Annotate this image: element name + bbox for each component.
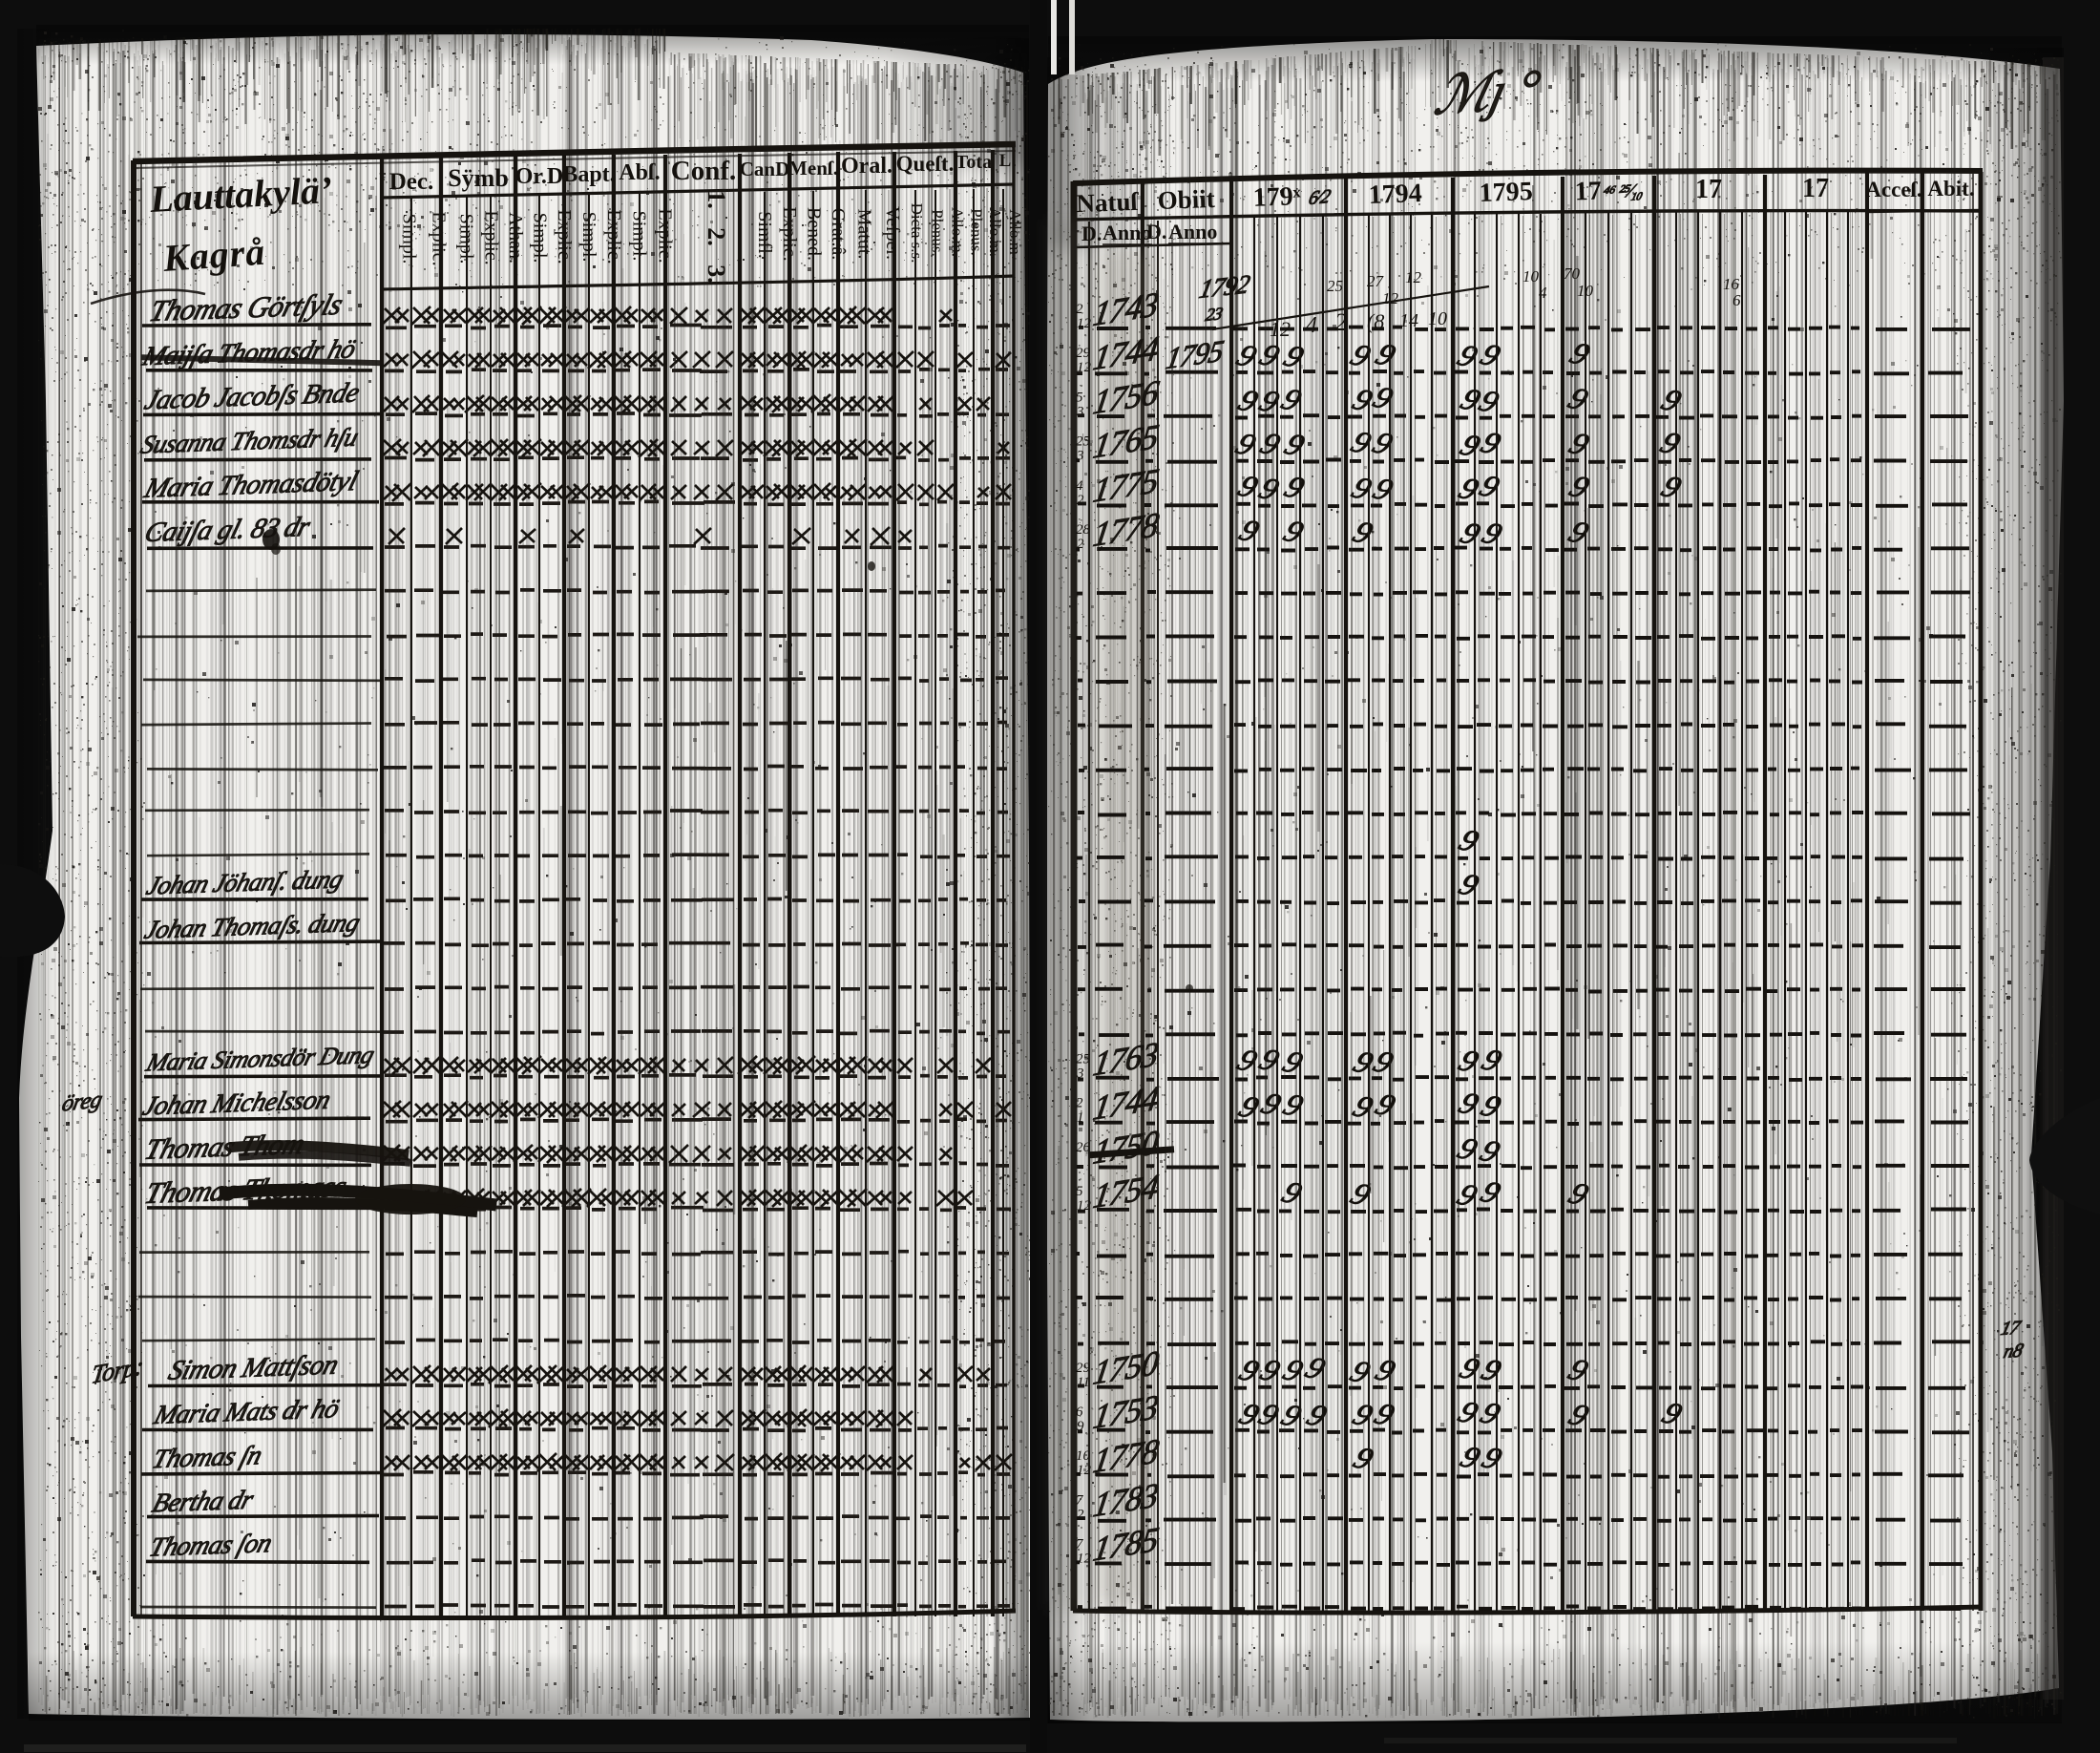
- svg-text:Bapt.: Bapt.: [562, 162, 615, 187]
- svg-text:Athan.: Athan.: [505, 212, 526, 264]
- svg-text:Dec.: Dec.: [389, 169, 434, 195]
- svg-text:Obiit: Obiit: [1157, 184, 1215, 215]
- svg-text:Veſper.: Veſper.: [882, 206, 903, 260]
- svg-text:10: 10: [1577, 282, 1594, 300]
- svg-text:(8: (8: [1367, 309, 1384, 333]
- svg-text:2: 2: [1076, 1096, 1083, 1111]
- svg-text:25: 25: [1327, 277, 1343, 295]
- svg-text:10: 10: [1522, 267, 1540, 285]
- svg-text:29: 29: [1076, 346, 1091, 361]
- svg-text:Plenus.: Plenus.: [929, 209, 947, 257]
- svg-text:4: 4: [1306, 313, 1317, 338]
- svg-text:Abit.: Abit.: [1927, 177, 1974, 201]
- svg-text:1792: 1792: [1197, 268, 1253, 304]
- svg-text:Dicta s.s.: Dicta s.s.: [908, 203, 926, 264]
- svg-text:70: 70: [1564, 264, 1581, 283]
- svg-text:1. 2. 3.: 1. 2. 3.: [703, 190, 730, 284]
- svg-text:12: 12: [1077, 316, 1092, 331]
- svg-text:Sÿmb: Sÿmb: [448, 164, 509, 192]
- svg-text:Conf.: Conf.: [671, 156, 736, 186]
- svg-text:17: 17: [1695, 175, 1722, 204]
- svg-text:Allo.m: Allo.m: [1006, 209, 1024, 255]
- svg-text:12: 12: [1077, 1463, 1092, 1478]
- svg-text:179ˣ: 179ˣ: [1252, 181, 1302, 213]
- svg-text:1: 1: [1077, 1110, 1084, 1126]
- svg-text:Natuſ: Natuſ: [1076, 187, 1140, 218]
- svg-text:2: 2: [1076, 302, 1083, 317]
- svg-text:3: 3: [1076, 404, 1084, 419]
- svg-text:5: 5: [1076, 390, 1083, 405]
- svg-text:4: 4: [1076, 478, 1083, 494]
- svg-text:Bertha dr: Bertha dr: [149, 1485, 258, 1518]
- svg-text:3: 3: [1076, 1066, 1084, 1081]
- svg-text:Bened.: Bened.: [804, 207, 825, 261]
- svg-text:Oral.: Oral.: [841, 154, 892, 179]
- svg-text:D.: D.: [1146, 220, 1166, 243]
- svg-text:12: 12: [1077, 360, 1092, 375]
- svg-text:11: 11: [1077, 1375, 1090, 1390]
- svg-text:Explic.: Explic.: [779, 206, 800, 261]
- svg-text:CanD: CanD: [740, 158, 790, 180]
- svg-text:öreg: öreg: [60, 1087, 105, 1116]
- svg-text:Anno: Anno: [1102, 221, 1151, 244]
- svg-text:1795: 1795: [1479, 177, 1533, 208]
- svg-text:12: 12: [1077, 1552, 1092, 1567]
- svg-text:Simon Mattſson: Simon Mattſson: [165, 1349, 342, 1386]
- svg-text:17: 17: [1574, 177, 1602, 207]
- svg-text:Queſt.: Queſt.: [896, 152, 955, 176]
- svg-text:Or.D: Or.D: [515, 164, 563, 189]
- svg-text:Caijſa gl. 83 dr: Caijſa gl. 83 dr: [141, 511, 314, 548]
- svg-text:Explic.: Explic.: [655, 208, 676, 263]
- svg-text:Allo.m.: Allo.m.: [986, 207, 1004, 257]
- svg-text:27: 27: [1367, 272, 1385, 290]
- svg-text:Simpl.: Simpl.: [578, 212, 599, 263]
- svg-text:14: 14: [1399, 310, 1418, 331]
- svg-text:Explic.: Explic.: [481, 210, 502, 264]
- svg-text:2: 2: [1334, 308, 1347, 336]
- svg-text:5: 5: [1076, 1184, 1083, 1199]
- svg-text:6: 6: [1076, 1405, 1083, 1420]
- svg-text:Grat.â.: Grat.â.: [828, 208, 849, 260]
- svg-text:3: 3: [1076, 449, 1084, 464]
- svg-text:Allo.m.: Allo.m.: [949, 207, 967, 257]
- svg-text:D.: D.: [1081, 222, 1102, 245]
- svg-text:17: 17: [1802, 174, 1829, 203]
- svg-text:12: 12: [1382, 289, 1399, 307]
- svg-text:Simpl.: Simpl.: [530, 213, 551, 264]
- svg-text:12: 12: [1270, 317, 1291, 341]
- svg-text:ℳȷ °: ℳȷ °: [1429, 59, 1545, 127]
- svg-text:Tota: Tota: [955, 152, 992, 173]
- svg-text:Explic.: Explic.: [603, 209, 624, 264]
- svg-text:Explic.: Explic.: [429, 211, 450, 265]
- svg-text:Thomas ſn: Thomas ſn: [149, 1441, 265, 1474]
- svg-text:2: 2: [1077, 537, 1084, 552]
- svg-text:2: 2: [1077, 493, 1084, 508]
- svg-text:25: 25: [1076, 434, 1091, 450]
- svg-text:12: 12: [1405, 268, 1422, 286]
- svg-text:Simpl.: Simpl.: [399, 214, 420, 264]
- svg-text:1794: 1794: [1368, 179, 1422, 210]
- svg-text:Simfl.: Simfl.: [754, 211, 775, 258]
- svg-text:4: 4: [1539, 284, 1547, 302]
- svg-text:6: 6: [1732, 291, 1741, 309]
- svg-text:L: L: [999, 151, 1012, 171]
- svg-text:Plenus.: Plenus.: [968, 208, 986, 256]
- svg-text:Matut.: Matut.: [854, 209, 875, 260]
- svg-text:⁴⁶ ²⁵⁄₁₀: ⁴⁶ ²⁵⁄₁₀: [1601, 180, 1647, 203]
- svg-text:Simpl.: Simpl.: [456, 214, 477, 264]
- svg-text:28: 28: [1076, 522, 1091, 538]
- svg-text:Abſ.: Abſ.: [619, 160, 660, 185]
- svg-text:10: 10: [1076, 1448, 1091, 1464]
- svg-text:Anno: Anno: [1168, 220, 1217, 243]
- svg-text:Simpl.: Simpl.: [629, 211, 650, 262]
- svg-text:9: 9: [1077, 1419, 1084, 1434]
- svg-text:Acceſ.: Acceſ.: [1865, 178, 1921, 201]
- svg-text:Menſ.: Menſ.: [788, 157, 838, 180]
- svg-text:Explic.: Explic.: [554, 209, 575, 264]
- svg-text:Thomas ſon: Thomas ſon: [146, 1529, 276, 1563]
- svg-text:29: 29: [1076, 1361, 1091, 1376]
- svg-text:25: 25: [1076, 1051, 1091, 1067]
- svg-text:12: 12: [1077, 1198, 1092, 1214]
- svg-text:Kagrå: Kagrå: [160, 230, 266, 280]
- svg-text:10: 10: [1428, 308, 1447, 329]
- svg-text:2: 2: [1077, 1507, 1084, 1522]
